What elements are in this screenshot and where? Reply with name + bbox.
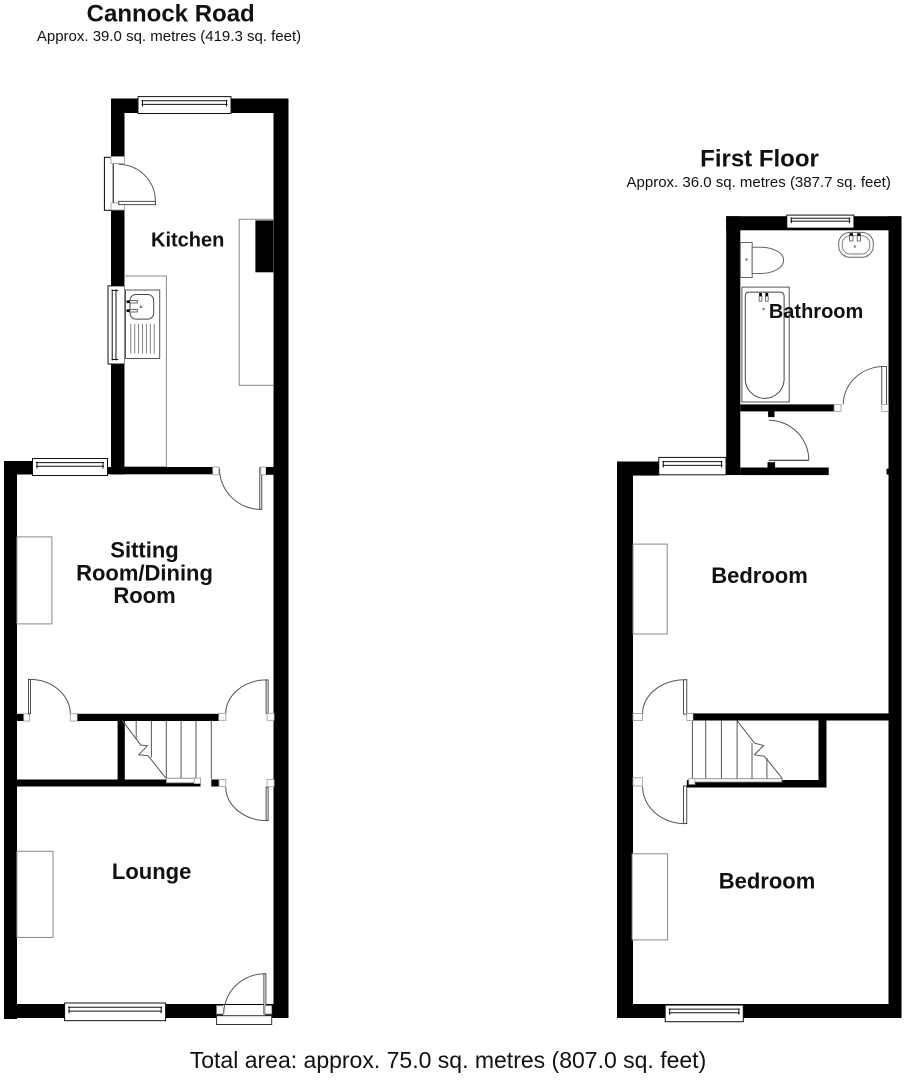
svg-text:Bedroom: Bedroom <box>719 869 816 894</box>
svg-text:Lounge: Lounge <box>112 859 191 884</box>
svg-text:Bedroom: Bedroom <box>711 563 808 588</box>
svg-text:Cannock Road: Cannock Road <box>87 1 255 28</box>
svg-text:Approx. 36.0 sq. metres (387.7: Approx. 36.0 sq. metres (387.7 sq. feet) <box>627 174 891 191</box>
svg-text:Kitchen: Kitchen <box>151 230 224 252</box>
svg-text:Approx. 39.0 sq. metres (419.3: Approx. 39.0 sq. metres (419.3 sq. feet) <box>37 28 301 45</box>
svg-text:First Floor: First Floor <box>700 146 819 173</box>
svg-text:Room: Room <box>113 583 175 608</box>
svg-text:Total area: approx. 75.0 sq. m: Total area: approx. 75.0 sq. metres (807… <box>190 1047 707 1073</box>
svg-text:Bathroom: Bathroom <box>769 301 863 323</box>
svg-text:Sitting: Sitting <box>110 538 178 563</box>
svg-text:Room/Dining: Room/Dining <box>76 561 213 586</box>
